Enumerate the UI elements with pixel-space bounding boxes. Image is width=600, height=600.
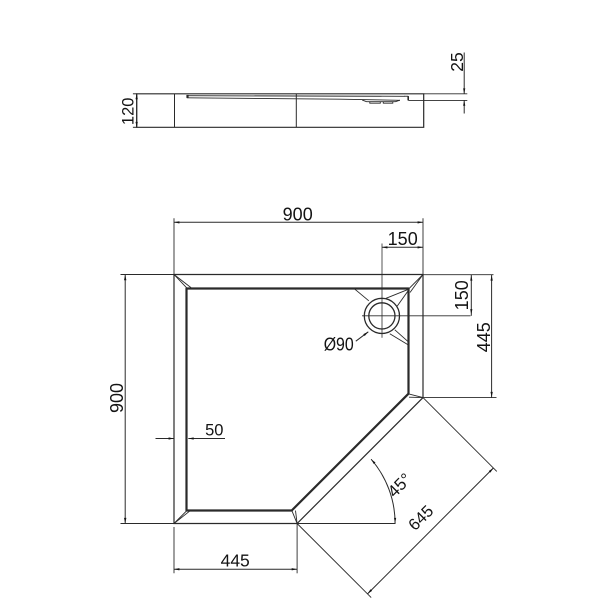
svg-text:445: 445 <box>474 322 494 352</box>
svg-text:25: 25 <box>447 52 467 71</box>
svg-text:150: 150 <box>452 280 472 310</box>
svg-text:900: 900 <box>107 383 127 413</box>
svg-text:150: 150 <box>388 229 418 249</box>
svg-text:445: 445 <box>221 551 250 571</box>
svg-text:120: 120 <box>120 98 138 126</box>
svg-text:50: 50 <box>205 422 223 440</box>
svg-text:Ø90: Ø90 <box>324 335 354 355</box>
svg-text:900: 900 <box>283 205 313 225</box>
